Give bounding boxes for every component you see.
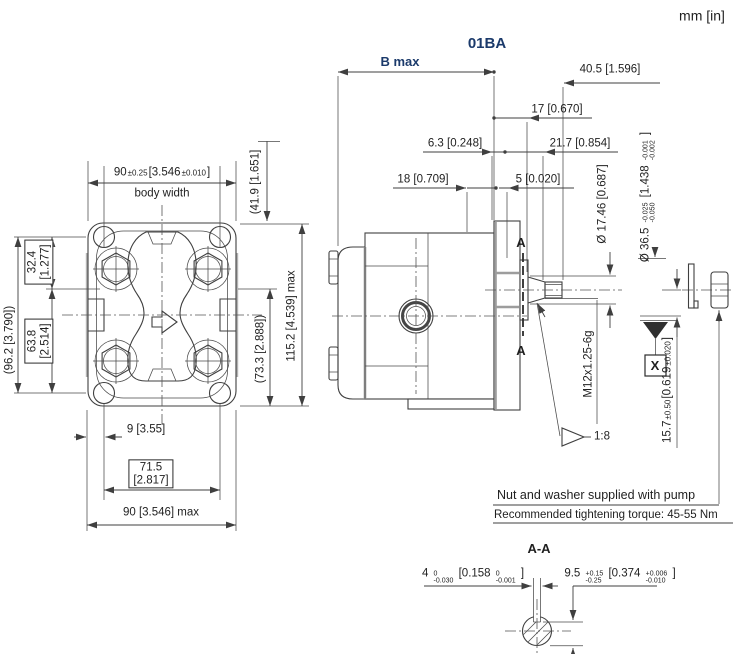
body-width-label: body width [135,188,190,201]
dim-41-9: (41.9 [1.651] [250,150,263,215]
dim-key-width: 4 0-0.030 [0.158 0-0.001 ] [422,568,524,585]
bolt-head-profile [329,251,338,284]
taper-ratio: 1:8 [594,431,610,444]
dim-73-3: (73.3 [2.888]) [255,315,268,383]
washer-profile [689,264,695,308]
dim-6-3: 6.3 [0.248] [428,138,482,151]
page-title: 01BA [468,36,506,53]
note-supplied: Nut and washer supplied with pump [497,489,695,503]
datum-label: X [651,359,660,373]
dim-body-width: 90±0.25[3.546±0.010] [114,167,210,180]
section-aa-view [424,578,657,654]
dim-63-8: 63.8[2.514] [24,318,53,363]
dim-key-height: 9.5 +0.15-0.25 [0.374 +0.006-0.010 ] [564,568,675,585]
dim-71-5: 71.5[2.817] [128,459,173,488]
dim-21-7: 21.7 [0.854] [550,138,611,151]
section-label-top: A [516,236,525,250]
taper-symbol-icon [562,428,584,446]
drawing-linework [0,0,736,654]
dim-9: 9 [3.55] [127,424,165,437]
dim-shaft-diameter: Ø 17.46 [0.687] [597,164,610,243]
dim-18: 18 [0.709] [397,174,448,187]
section-aa-title: A-A [527,542,550,556]
dim-17: 17 [0.670] [531,104,582,117]
dim-15-7: 15.7±0.50[0.619±0.020] [662,337,675,443]
thread-spec: M12x1.25-6g [583,330,596,397]
dim-pilot-diameter: Ø 36.5 -0.025-0.050 [1.438 -0.001-0.002 … [640,132,657,262]
dim-b-max: B max [380,55,419,69]
flange-foot [408,399,494,409]
dim-40-5: 40.5 [1.596] [580,64,641,77]
dim-96-2: (96.2 [3.790]) [4,306,17,374]
dim-32-4: 32.4[1.277] [24,239,53,284]
units-label: mm [in] [679,8,725,23]
pump-dimensional-drawing: mm [in] 01BA B max 40.5 [1.596] 17 [0.67… [0,0,736,654]
dim-90-max: 90 [3.546] max [123,507,199,520]
note-torque: Recommended tightening torque: 45-55 Nm [494,509,718,522]
rear-cover [338,247,365,399]
dim-5: 5 [0.020] [516,174,561,187]
bolt-head-profile [329,347,338,380]
section-label-bottom: A [516,344,525,358]
front-view [62,166,262,425]
dim-115-2: 115.2 [4.539] max [286,270,299,361]
